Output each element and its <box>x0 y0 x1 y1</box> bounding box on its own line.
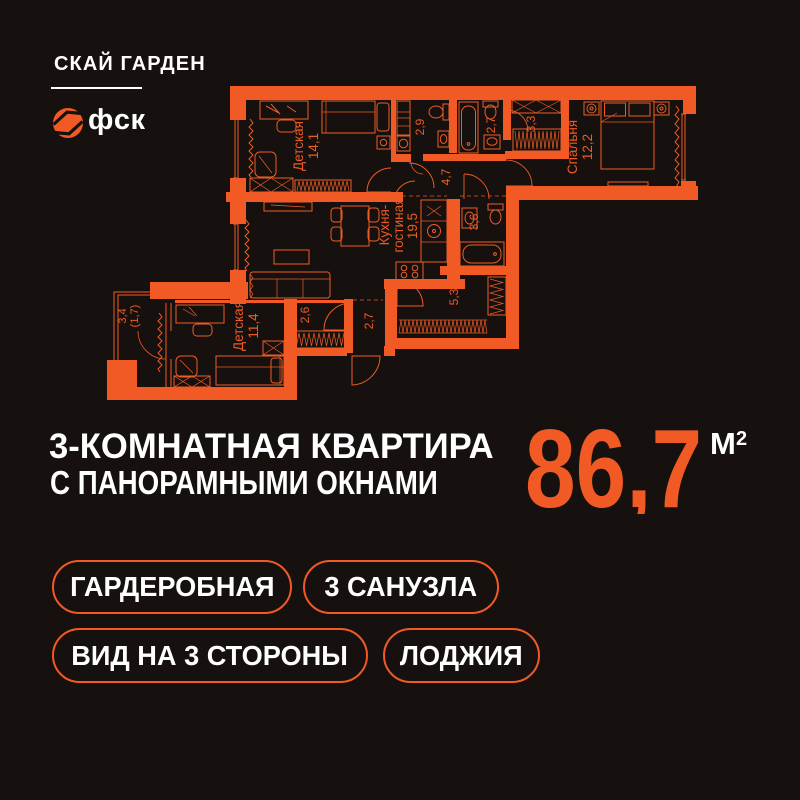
svg-text:Детская: Детская <box>291 121 306 171</box>
svg-text:Кухня-: Кухня- <box>377 205 392 246</box>
svg-text:Спальня: Спальня <box>565 120 580 174</box>
svg-text:12,2: 12,2 <box>580 134 595 160</box>
svg-text:2,6: 2,6 <box>298 306 312 323</box>
svg-text:14,1: 14,1 <box>306 133 321 159</box>
svg-text:5,3: 5,3 <box>447 288 461 305</box>
svg-text:2,7: 2,7 <box>362 312 376 329</box>
svg-text:3,3: 3,3 <box>524 115 538 132</box>
svg-text:(1,7): (1,7) <box>129 305 141 328</box>
svg-text:2,7: 2,7 <box>484 116 498 133</box>
svg-text:гостиная: гостиная <box>391 198 406 253</box>
svg-text:2,9: 2,9 <box>413 118 427 135</box>
svg-text:3,4: 3,4 <box>117 308 129 323</box>
svg-text:11,4: 11,4 <box>246 313 261 339</box>
svg-text:19,5: 19,5 <box>405 213 420 239</box>
svg-text:3,6: 3,6 <box>467 213 481 230</box>
svg-text:4,7: 4,7 <box>439 168 453 185</box>
svg-text:Детская: Детская <box>231 301 246 351</box>
